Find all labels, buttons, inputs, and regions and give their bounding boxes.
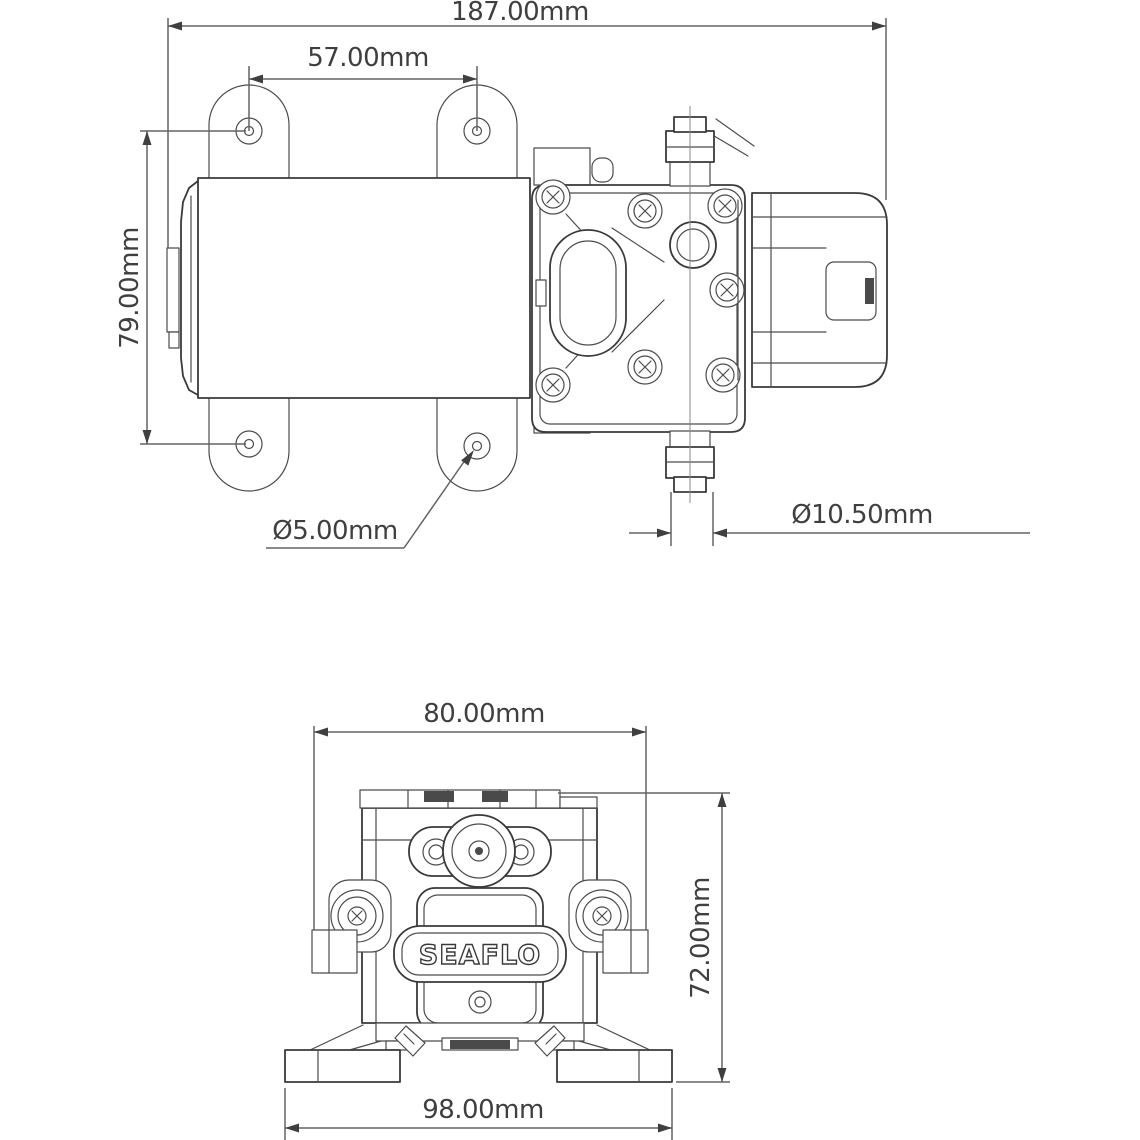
brand-logo: SEAFLO [419, 940, 541, 971]
head-screw [708, 189, 742, 223]
right-foot-pad [557, 1050, 672, 1082]
technical-drawing-page: SEAFLO [0, 0, 1140, 1140]
pump-body-side [167, 178, 530, 398]
dim-port-diameter: Ø10.50mm [629, 492, 1030, 546]
dim-base-width: 98.00mm [285, 1088, 672, 1140]
head-screw [710, 273, 744, 307]
head-screw [628, 194, 662, 228]
dim-hole-vertical-spacing-label: 79.00mm [115, 227, 145, 349]
motor-connector [865, 278, 874, 304]
motor-side [738, 193, 887, 387]
dim-overall-length-label: 187.00mm [451, 0, 589, 27]
dim-mount-hole-diameter-label: Ø5.00mm [272, 516, 398, 546]
left-foot-pad [285, 1050, 400, 1082]
head-screw [536, 180, 570, 214]
dim-base-width-label: 98.00mm [422, 1095, 544, 1125]
front-panel: SEAFLO [394, 888, 566, 1030]
dim-hole-spacing: 57.00mm [249, 43, 477, 131]
mounting-base [285, 1023, 672, 1082]
dim-overall-width-label: 80.00mm [423, 699, 545, 729]
dim-mount-hole-diameter: Ø5.00mm [266, 450, 474, 548]
logo-band: SEAFLO [394, 926, 566, 982]
head-screw [706, 358, 740, 392]
head-screw [628, 350, 662, 384]
side-view [167, 85, 887, 503]
port-boss-circle [670, 222, 716, 268]
dim-hole-spacing-label: 57.00mm [307, 43, 429, 73]
pump-head-side [532, 119, 754, 433]
diaphragm-oval [550, 230, 626, 356]
dim-overall-height-label: 72.00mm [686, 877, 716, 999]
dim-port-diameter-label: Ø10.50mm [791, 500, 933, 530]
head-screw [536, 368, 570, 402]
front-view: SEAFLO [285, 790, 672, 1082]
pump-dimension-drawing: SEAFLO [0, 0, 1140, 1140]
